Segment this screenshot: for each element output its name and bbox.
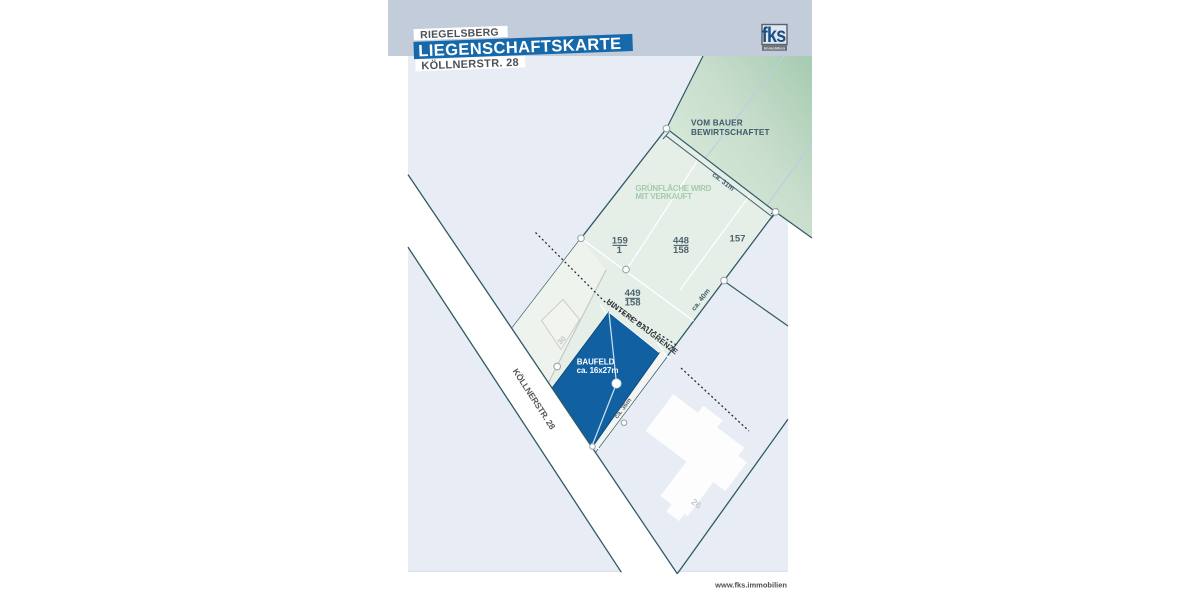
- svg-text:ca. 16x27m: ca. 16x27m: [577, 366, 619, 375]
- svg-text:158: 158: [673, 245, 690, 256]
- svg-text:1: 1: [617, 245, 623, 256]
- svg-text:BEWIRTSCHAFTET: BEWIRTSCHAFTET: [691, 128, 770, 137]
- svg-text:158: 158: [625, 298, 642, 309]
- svg-text:VOM BAUER: VOM BAUER: [691, 119, 743, 128]
- svg-text:fks: fks: [762, 23, 787, 47]
- svg-text:Immobilien: Immobilien: [764, 46, 786, 51]
- svg-text:www.fks.immobilien: www.fks.immobilien: [714, 581, 787, 590]
- svg-text:MIT VERKAUFT: MIT VERKAUFT: [635, 192, 692, 201]
- svg-text:157: 157: [729, 234, 745, 245]
